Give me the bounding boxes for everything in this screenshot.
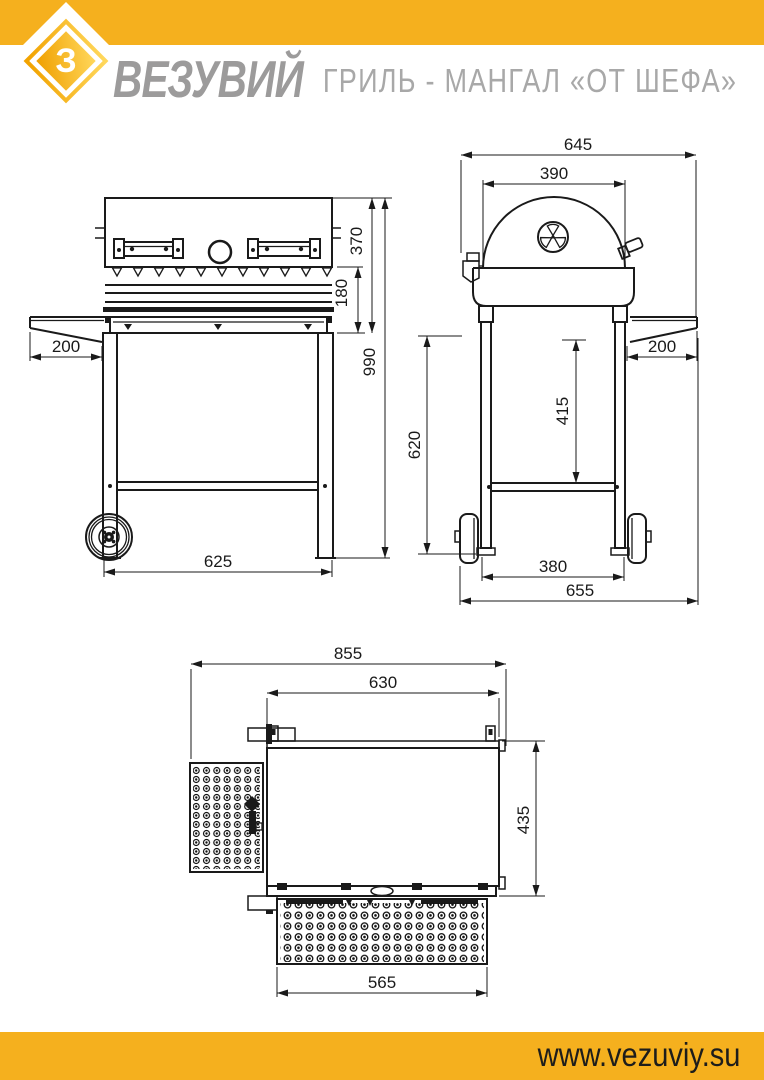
dim-label-625: 625 bbox=[204, 552, 232, 571]
handle-left bbox=[114, 239, 183, 258]
dim-side-655: 655 bbox=[460, 338, 698, 605]
side-legs bbox=[477, 306, 629, 555]
dim-top-435: 435 bbox=[499, 741, 545, 896]
dim-front-180: 180 bbox=[332, 267, 363, 333]
dim-label-390: 390 bbox=[540, 164, 568, 183]
thermometer-icon bbox=[209, 241, 231, 263]
dim-side-620: 620 bbox=[405, 336, 476, 554]
website-link[interactable]: www.vezuviy.su bbox=[537, 1036, 740, 1074]
dim-front-200: 200 bbox=[30, 332, 102, 361]
dim-top-630: 630 bbox=[267, 673, 499, 737]
side-view-drawing: 645 390 200 415 620 380 bbox=[410, 140, 764, 620]
dim-label-370: 370 bbox=[347, 227, 366, 255]
wheel bbox=[86, 514, 132, 560]
dim-label-435: 435 bbox=[514, 806, 533, 834]
front-view-drawing: 200 625 370 180 990 bbox=[20, 140, 400, 600]
lower-tray bbox=[105, 316, 332, 333]
front-shelf-top bbox=[277, 899, 487, 964]
dome-lid bbox=[463, 197, 645, 282]
logo-letter: З bbox=[45, 40, 87, 82]
left-shelf-top bbox=[190, 763, 263, 872]
vent-icon bbox=[538, 222, 568, 252]
legs bbox=[100, 333, 336, 558]
vezuviy-logo-icon: З bbox=[10, 8, 126, 124]
dim-label-630: 630 bbox=[369, 673, 397, 692]
dim-front-625: 625 bbox=[104, 552, 332, 577]
page-title: ГРИЛЬ - МАНГАЛ «ОТ ШЕФА» bbox=[323, 62, 737, 100]
dim-label-565: 565 bbox=[368, 973, 396, 992]
back-handle bbox=[248, 724, 295, 744]
body-top bbox=[267, 726, 505, 889]
front-left-bracket bbox=[248, 896, 277, 914]
brand-name: ВЕЗУВИЙ bbox=[113, 50, 303, 110]
front-rim bbox=[267, 883, 496, 896]
dim-label-990: 990 bbox=[360, 348, 379, 376]
top-view-drawing: 855 630 435 565 bbox=[150, 640, 580, 1010]
dim-label-180: 180 bbox=[332, 279, 351, 307]
dim-top-565: 565 bbox=[277, 967, 487, 997]
dim-label-200: 200 bbox=[648, 337, 676, 356]
dim-label-620: 620 bbox=[405, 431, 424, 459]
dim-side-415: 415 bbox=[553, 340, 586, 483]
catalog-page: З ВЕЗУВИЙ ГРИЛЬ - МАНГАЛ «ОТ ШЕФА» bbox=[0, 0, 764, 1080]
handle-right bbox=[248, 239, 320, 258]
firebox bbox=[95, 198, 341, 333]
dim-front-370: 370 bbox=[332, 198, 392, 333]
dim-label-645: 645 bbox=[564, 135, 592, 154]
dim-label-415: 415 bbox=[553, 397, 572, 425]
dim-label-855: 855 bbox=[334, 644, 362, 663]
lid-handle bbox=[617, 237, 644, 259]
dim-side-380: 380 bbox=[482, 557, 624, 581]
bowl-body bbox=[473, 268, 634, 306]
flame-cutout-band bbox=[103, 268, 334, 312]
dim-label-380: 380 bbox=[539, 557, 567, 576]
dim-side-390: 390 bbox=[483, 164, 625, 266]
dim-label-655: 655 bbox=[566, 581, 594, 600]
dim-label-200: 200 bbox=[52, 337, 80, 356]
